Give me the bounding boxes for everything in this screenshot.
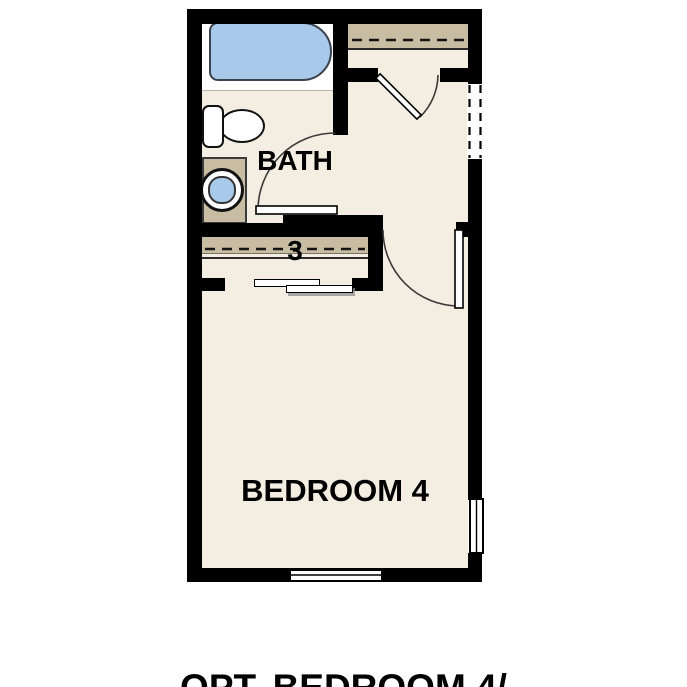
closet-door-swing-arc [420, 75, 438, 117]
caption-line1: OPT. BEDROOM 4/ [0, 669, 687, 687]
bedroom-room-label: BEDROOM 4 [202, 406, 468, 576]
closet-door-leaf-icon [376, 74, 421, 119]
floor-plan-canvas: BATH 3 BEDROOM 4 OPT. BEDROOM 4/ BATH 3 [0, 0, 687, 687]
plan-caption: OPT. BEDROOM 4/ BATH 3 [0, 595, 687, 687]
bath-label-line1: BATH [230, 146, 360, 176]
bedroom-door-leaf-icon [455, 230, 463, 308]
bedroom-door-swing-arc [383, 230, 459, 306]
bath-label-line2: 3 [230, 236, 360, 266]
bedroom-label-text: BEDROOM 4 [202, 474, 468, 508]
bath-room-label: BATH 3 [230, 86, 360, 326]
